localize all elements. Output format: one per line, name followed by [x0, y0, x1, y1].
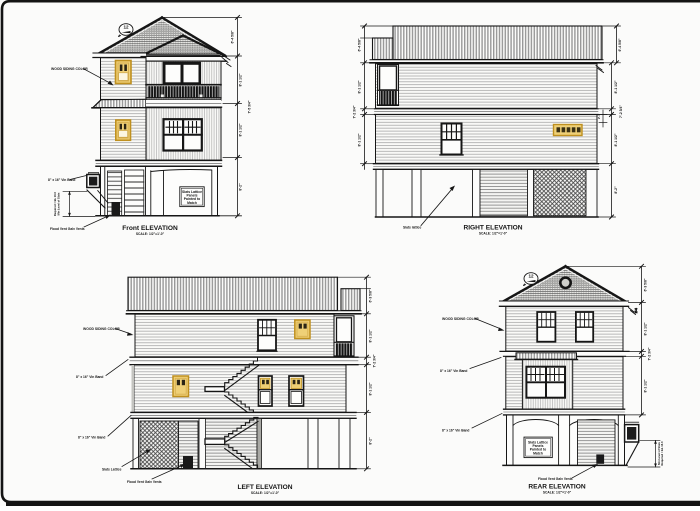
svg-text:8'-1 1/2": 8'-1 1/2"	[358, 80, 362, 93]
svg-text:Match: Match	[187, 201, 197, 205]
svg-text:8" x 16" Vin Band: 8" x 16" Vin Band	[78, 436, 105, 440]
svg-text:8'-2": 8'-2"	[239, 183, 243, 191]
svg-text:Required = EL 16.0: Required = EL 16.0	[53, 191, 57, 216]
svg-text:2'-4: 2'-4	[634, 308, 638, 313]
svg-text:8'-1 1/2": 8'-1 1/2"	[369, 382, 373, 395]
svg-text:LEFT ELEVATION: LEFT ELEVATION	[237, 484, 292, 491]
svg-text:8'-1 1/2": 8'-1 1/2"	[358, 133, 362, 146]
svg-text:8" x 16" Vin Band: 8" x 16" Vin Band	[48, 178, 75, 182]
svg-text:Min Level of Slats: Min Level of Slats	[57, 192, 61, 215]
svg-text:RIGHT ELEVATION: RIGHT ELEVATION	[463, 225, 522, 232]
svg-text:Flood Vent Galv Vents: Flood Vent Galv Vents	[538, 477, 573, 481]
svg-text:12: 12	[528, 274, 534, 279]
svg-text:12: 12	[123, 25, 129, 30]
svg-text:8'-1 1/2": 8'-1 1/2"	[239, 123, 243, 136]
svg-text:7'-2 3/4": 7'-2 3/4"	[373, 354, 377, 367]
svg-text:Slats lattice: Slats lattice	[403, 226, 421, 230]
svg-text:Flood Vent Galv Vents: Flood Vent Galv Vents	[127, 480, 162, 484]
svg-text:6'-4 5/8": 6'-4 5/8"	[231, 30, 235, 43]
svg-text:SCALE: 1/2"=1'-0": SCALE: 1/2"=1'-0"	[543, 491, 572, 495]
svg-text:7'-2 3/4": 7'-2 3/4"	[648, 347, 652, 360]
svg-text:8'-1 1/2": 8'-1 1/2"	[239, 73, 243, 86]
svg-text:7'-2 3/4": 7'-2 3/4"	[353, 105, 357, 118]
svg-text:REAR ELEVATION: REAR ELEVATION	[528, 484, 586, 491]
svg-text:7'-5 3/4": 7'-5 3/4"	[248, 100, 252, 113]
svg-text:2'-4: 2'-4	[597, 114, 601, 119]
svg-text:8'-1 1/2": 8'-1 1/2"	[644, 379, 648, 392]
svg-text:SCALE: 1/2"=1'-0": SCALE: 1/2"=1'-0"	[251, 491, 280, 495]
svg-text:8'-1 1/2": 8'-1 1/2"	[644, 322, 648, 335]
svg-text:8'-2": 8'-2"	[369, 437, 373, 445]
svg-text:8" x 16" Vin Band: 8" x 16" Vin Band	[76, 375, 103, 379]
svg-text:8" x 16" Vin Band: 8" x 16" Vin Band	[442, 429, 469, 433]
svg-text:6'-3 5/8": 6'-3 5/8"	[644, 278, 648, 291]
svg-text:Required = EL 16.0: Required = EL 16.0	[660, 441, 664, 466]
svg-text:6'-4 5/8": 6'-4 5/8"	[618, 38, 622, 51]
svg-text:Slats Lattice: Slats Lattice	[102, 468, 122, 472]
svg-text:SCALE: 1/2"=1'-0": SCALE: 1/2"=1'-0"	[136, 232, 165, 236]
svg-text:WOOD SIDING COLOR: WOOD SIDING COLOR	[51, 67, 88, 71]
svg-text:Flood Vent Galv Vents: Flood Vent Galv Vents	[50, 227, 85, 231]
svg-text:Match: Match	[533, 451, 543, 455]
svg-text:WOOD SIDING COLOR: WOOD SIDING COLOR	[442, 317, 479, 321]
svg-text:8'-2": 8'-2"	[614, 186, 618, 194]
svg-text:8'-1 1/2": 8'-1 1/2"	[369, 329, 373, 342]
svg-text:7'-2 3/4": 7'-2 3/4"	[619, 105, 623, 118]
svg-text:Front ELEVATION: Front ELEVATION	[122, 225, 178, 232]
svg-text:WOOD SIDING COLOR: WOOD SIDING COLOR	[83, 327, 120, 331]
svg-text:6'-3 5/8": 6'-3 5/8"	[369, 289, 373, 302]
svg-text:8'-1 1/2": 8'-1 1/2"	[614, 80, 618, 93]
svg-text:6'-4 5/8": 6'-4 5/8"	[358, 38, 362, 51]
svg-text:8'-1 1/2": 8'-1 1/2"	[614, 133, 618, 146]
svg-text:SCALE: 1/2"=1'-0": SCALE: 1/2"=1'-0"	[479, 232, 508, 236]
svg-text:8" x 16" Vin Band: 8" x 16" Vin Band	[440, 369, 467, 373]
